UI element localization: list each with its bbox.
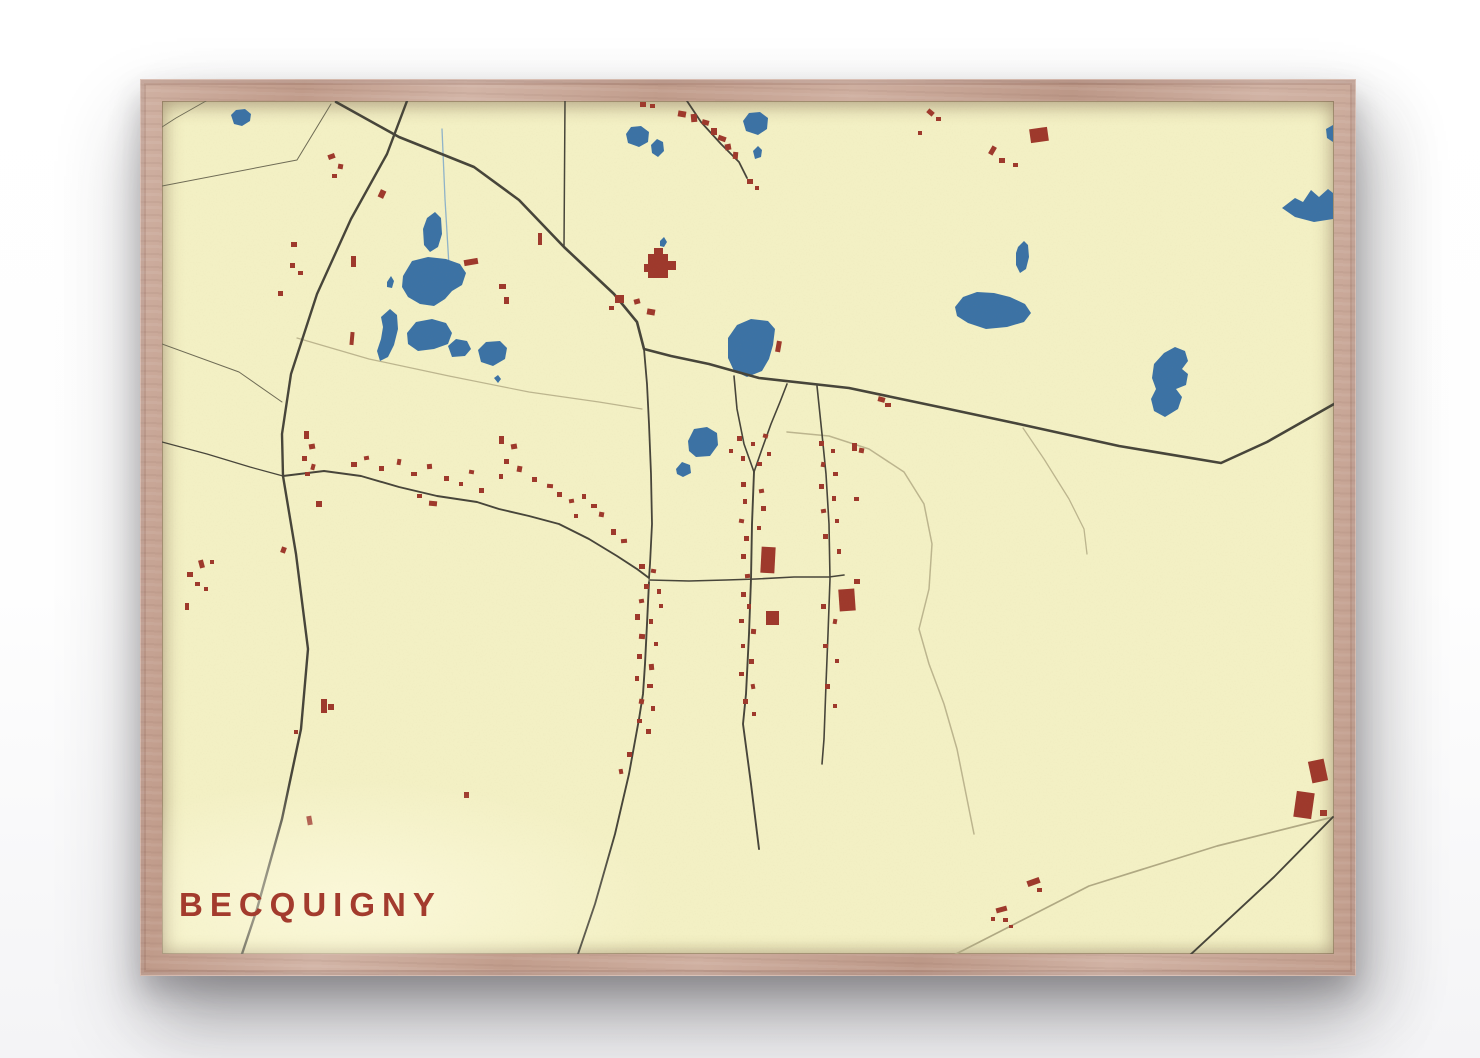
picture-frame: BECQUIGNY <box>140 79 1356 976</box>
map-print: BECQUIGNY <box>162 101 1334 954</box>
paper-texture <box>162 101 1334 954</box>
wall-background: BECQUIGNY <box>0 0 1480 1058</box>
poster-title: BECQUIGNY <box>179 886 442 924</box>
map-canvas <box>162 101 1334 954</box>
